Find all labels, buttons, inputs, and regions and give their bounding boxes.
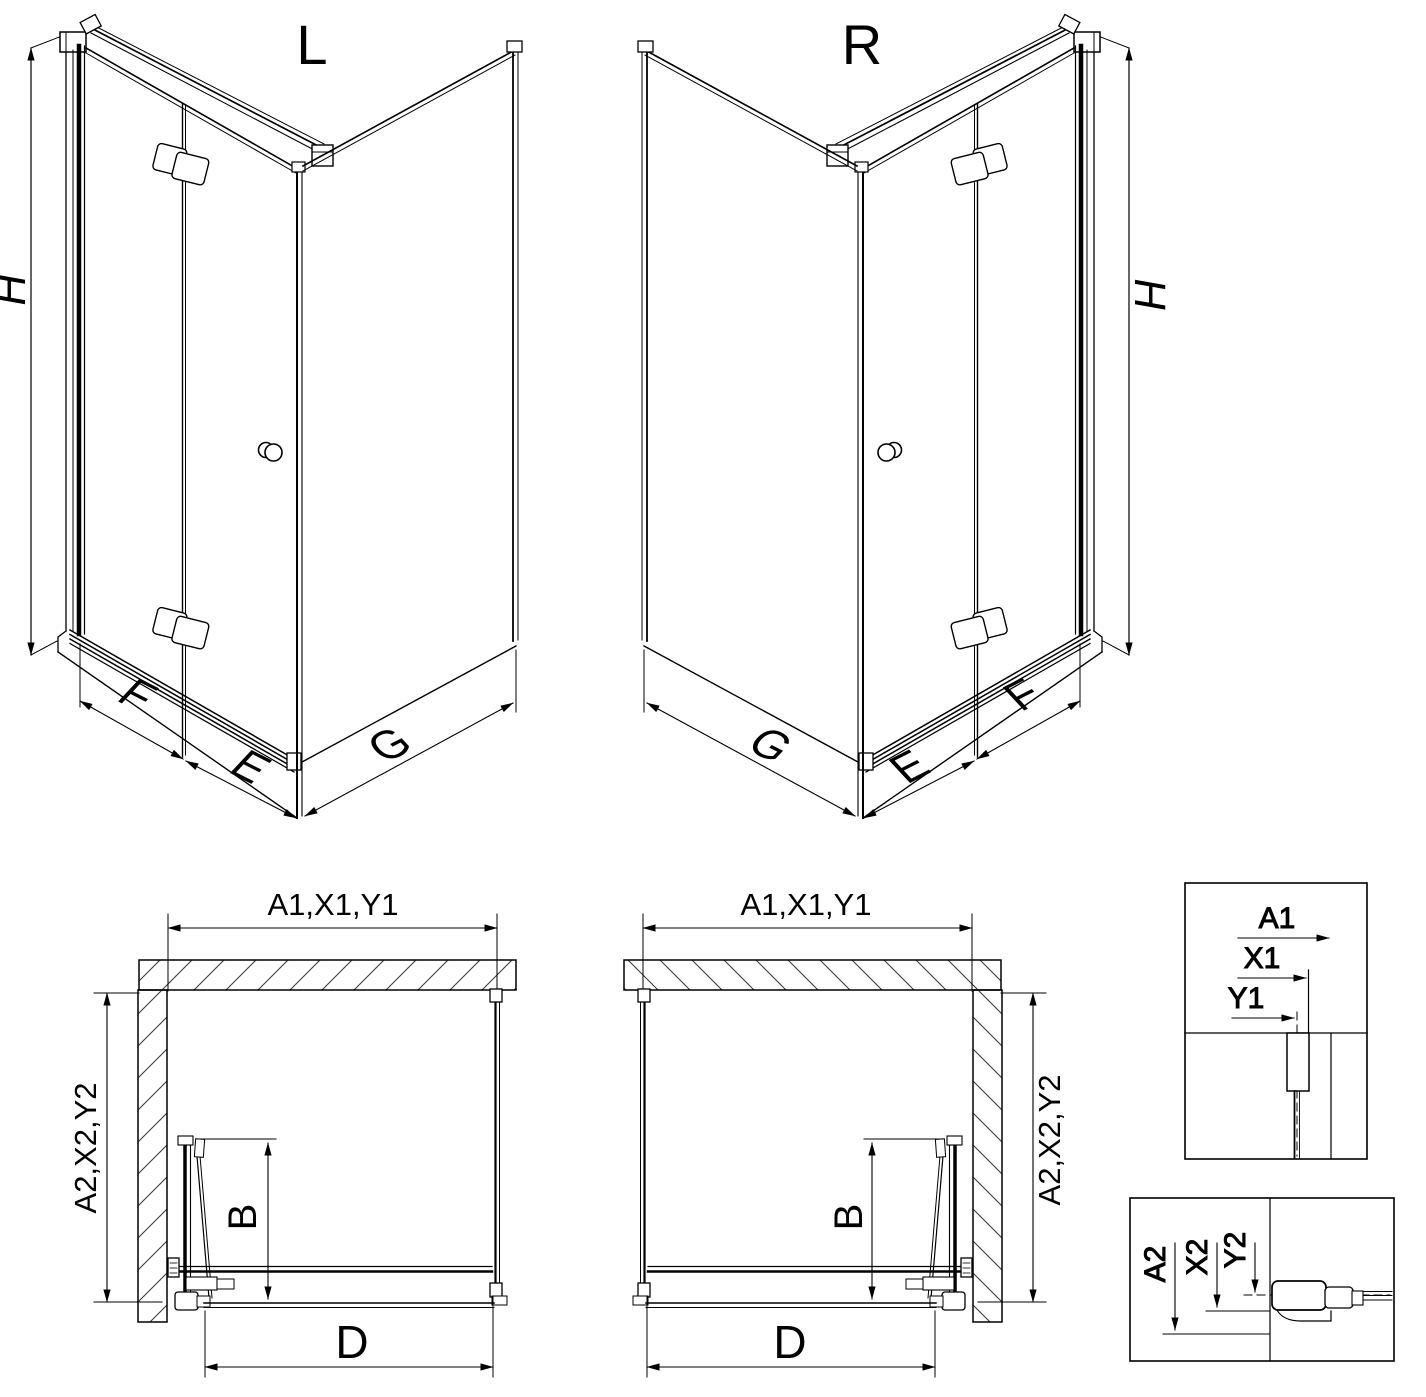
detail-dim-x1-label: X1 <box>1244 942 1281 975</box>
detail-dim-a2-label: A2 <box>1139 1246 1172 1283</box>
plan-dim-side-label-left: A2,X2,Y2 <box>68 1083 103 1214</box>
plan-dim-d-label-right: D <box>773 1316 806 1368</box>
dim-label-e-left: E <box>220 741 282 792</box>
iso-view-right: R H F E G <box>638 13 1174 818</box>
plan-dim-top-label-left: A1,X1,Y1 <box>268 887 399 922</box>
plan-view-left-geometry <box>94 914 516 1377</box>
plan-view-right-geometry <box>624 914 1046 1377</box>
detail-dim-y2-label: Y2 <box>1219 1232 1252 1269</box>
wall-profile-section <box>1287 1033 1309 1158</box>
dim-label-h-left: H <box>0 269 35 309</box>
plan-view-right: A1,X1,Y1 A2,X2,Y2 B D <box>624 887 1067 1377</box>
plan-view-left: A1,X1,Y1 A2,X2,Y2 B D <box>68 887 516 1377</box>
detail-box-upper: A1 X1 Y1 <box>1185 883 1367 1159</box>
view-label-left: L <box>296 13 327 76</box>
iso-view-left-geometry <box>31 14 522 818</box>
iso-view-left: L H F E G <box>0 13 522 818</box>
detail-dim-a1-label: A1 <box>1259 902 1296 935</box>
shower-enclosure-technical-diagram: L H F E G R H F E G A1,X1,Y1 A2,X2,Y2 B … <box>0 0 1426 1397</box>
dim-label-g-left: G <box>356 718 422 772</box>
view-label-right: R <box>842 13 882 76</box>
detail-dim-y1-label: Y1 <box>1228 982 1265 1015</box>
plan-dim-b-label-right: B <box>827 1204 871 1231</box>
iso-view-right-geometry <box>638 14 1129 818</box>
plan-dim-b-label-left: B <box>221 1204 265 1231</box>
plan-dim-d-label-left: D <box>335 1316 368 1368</box>
shower-enclosure-drawing-page: L H F E G R H F E G A1,X1,Y1 A2,X2,Y2 B … <box>0 0 1426 1397</box>
dim-label-g-right: G <box>738 718 804 772</box>
plan-dim-side-label-right: A2,X2,Y2 <box>1032 1075 1067 1206</box>
plan-dim-top-label-right: A1,X1,Y1 <box>741 887 872 922</box>
detail-dim-x2-label: X2 <box>1181 1239 1214 1276</box>
dim-label-h-right: H <box>1125 274 1174 314</box>
wall-profile-section-side <box>1272 1281 1392 1321</box>
detail-box-lower: A2 X2 Y2 <box>1130 1198 1394 1361</box>
dim-label-e-right: E <box>878 741 940 792</box>
